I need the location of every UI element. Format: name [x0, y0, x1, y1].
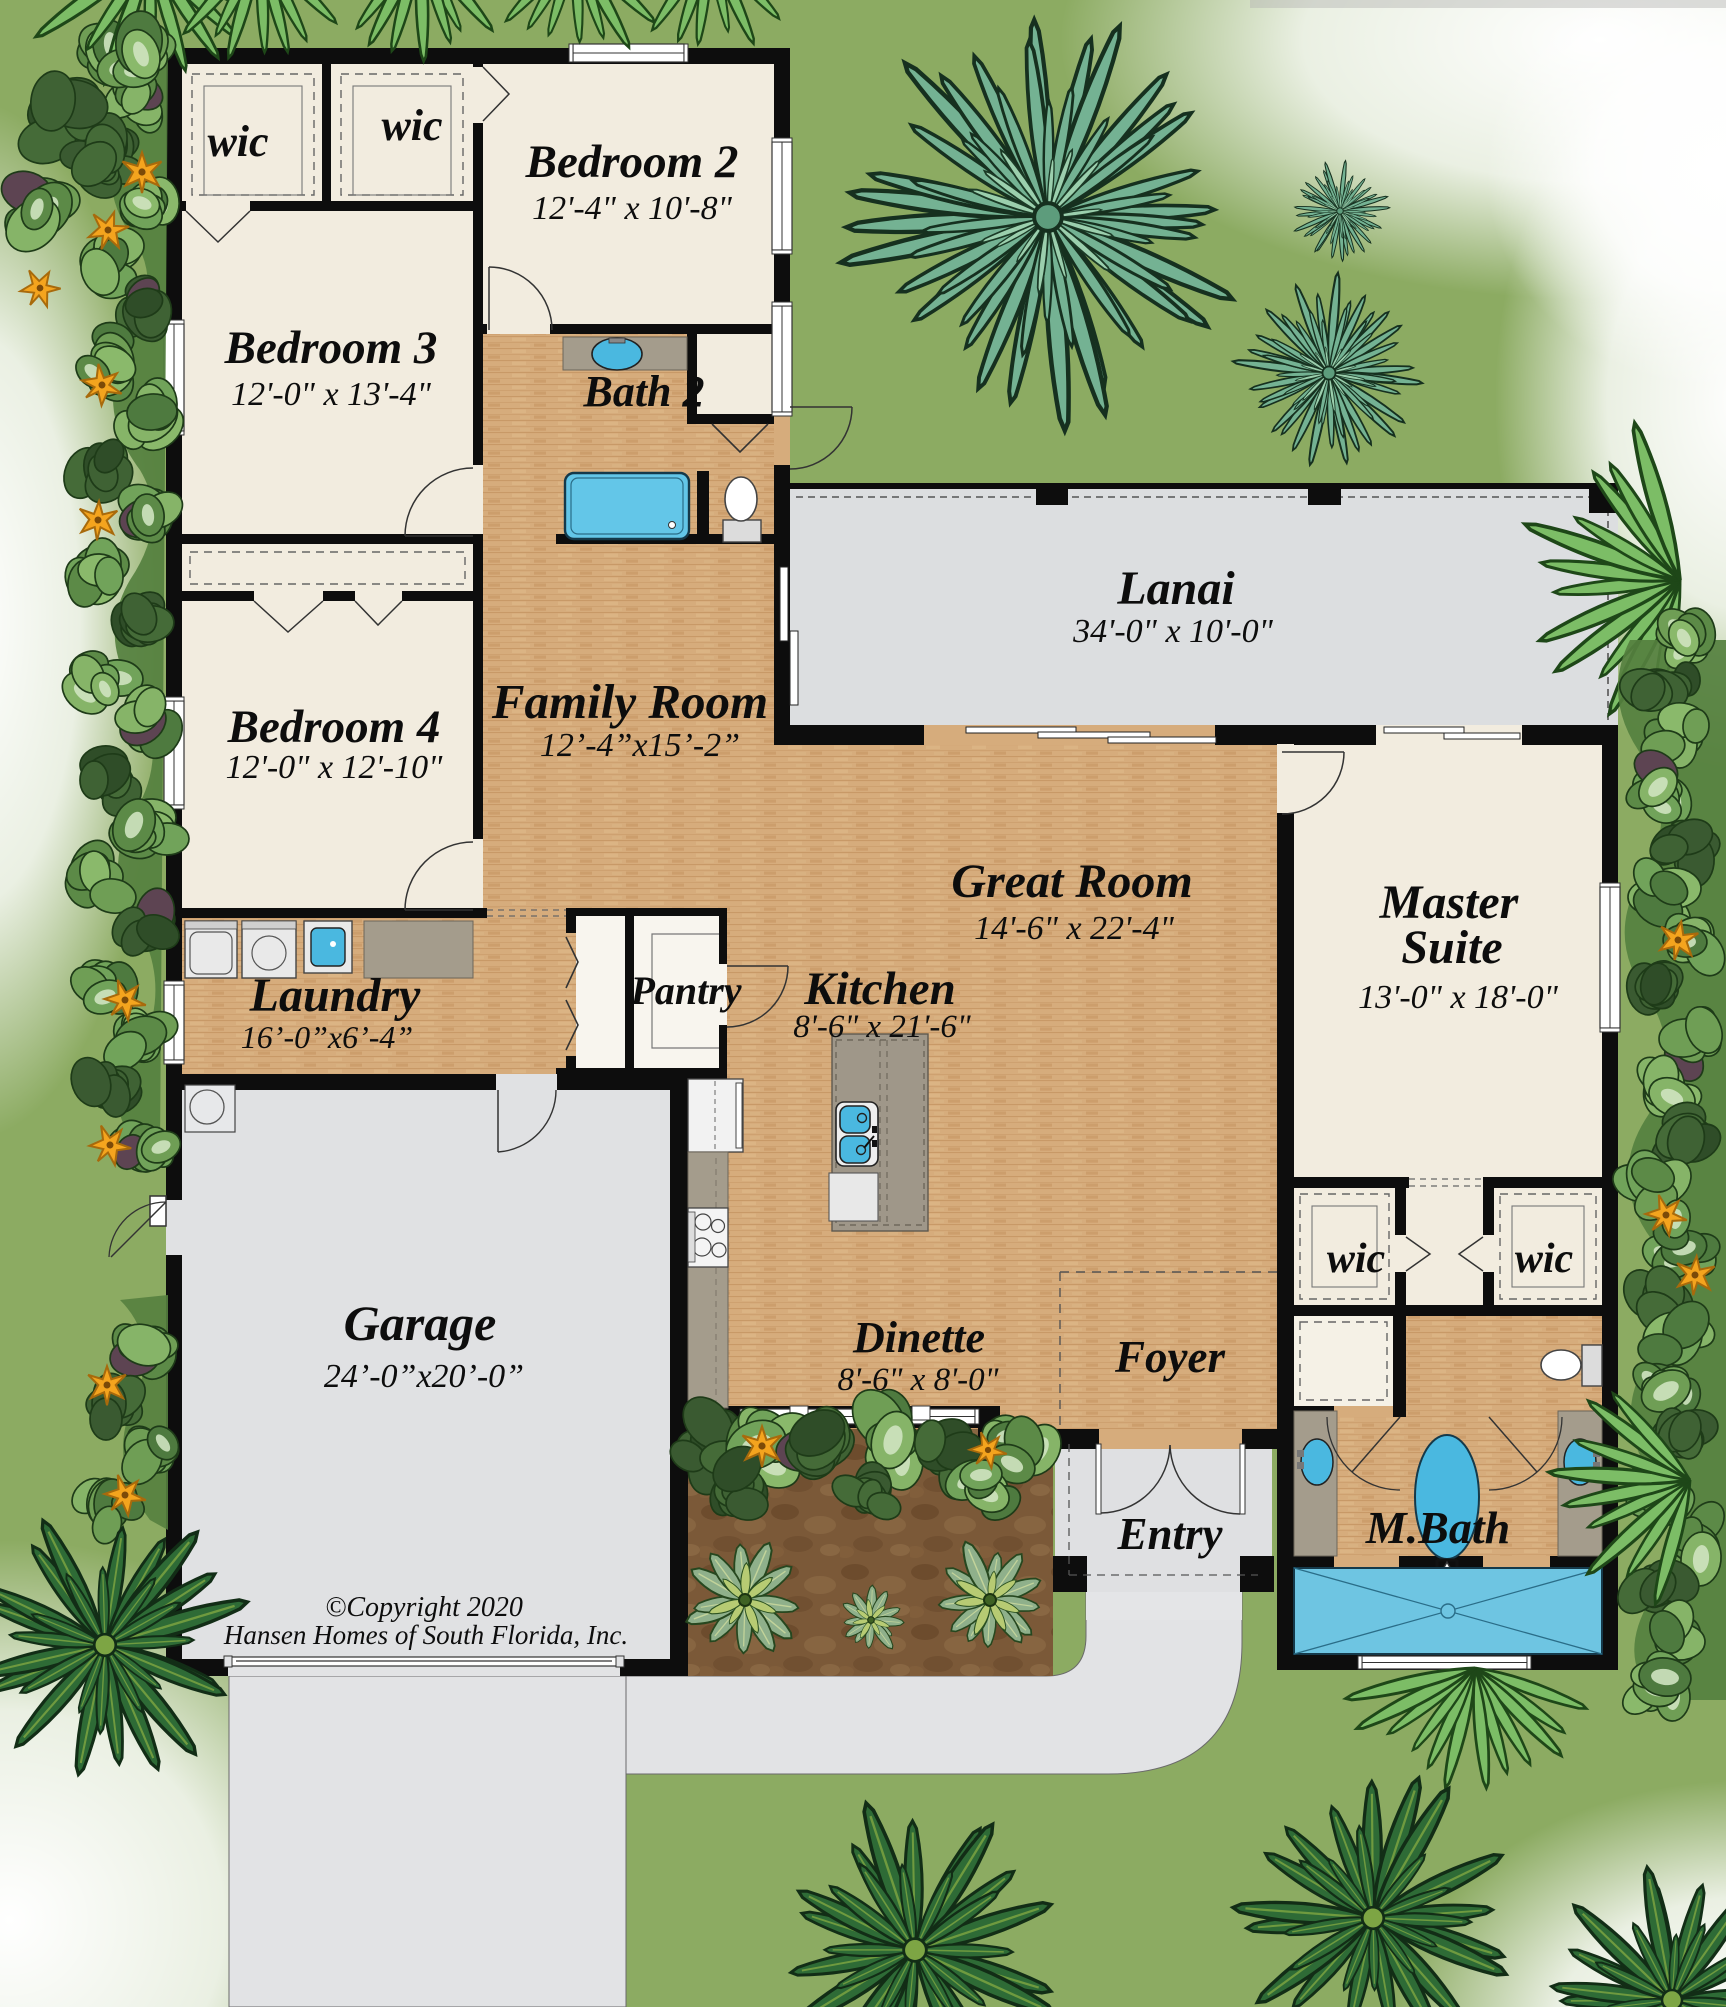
svg-text:Bedroom 3: Bedroom 3 [224, 322, 438, 374]
svg-text:12'-0" x 13'-4": 12'-0" x 13'-4" [231, 376, 432, 413]
svg-text:wic: wic [1515, 1236, 1574, 1282]
svg-text:Entry: Entry [1116, 1509, 1223, 1559]
svg-text:Suite: Suite [1401, 921, 1502, 974]
svg-text:Laundry: Laundry [249, 969, 421, 1022]
svg-text:34'-0" x 10'-0": 34'-0" x 10'-0" [1072, 613, 1274, 650]
svg-text:Kitchen: Kitchen [803, 963, 955, 1015]
svg-text:14'-6" x 22'-4": 14'-6" x 22'-4" [974, 910, 1175, 947]
svg-text:Lanai: Lanai [1116, 562, 1235, 615]
svg-text:Foyer: Foyer [1114, 1332, 1225, 1382]
svg-text:Great Room: Great Room [951, 855, 1192, 908]
svg-text:16’-0”x6’-4”: 16’-0”x6’-4” [241, 1019, 413, 1055]
svg-text:12'-4" x 10'-8": 12'-4" x 10'-8" [532, 190, 733, 227]
svg-text:wic: wic [381, 101, 442, 150]
svg-text:Dinette: Dinette [852, 1313, 985, 1362]
svg-text:12’-4”x15’-2”: 12’-4”x15’-2” [540, 727, 740, 764]
svg-text:Bedroom 2: Bedroom 2 [525, 136, 739, 188]
svg-text:wic: wic [207, 117, 268, 166]
svg-text:24’-0”x20’-0”: 24’-0”x20’-0” [324, 1358, 524, 1395]
svg-text:Pantry: Pantry [629, 968, 741, 1013]
svg-text:©Copyright 2020: ©Copyright 2020 [325, 1592, 523, 1623]
svg-text:8'-6" x 21'-6": 8'-6" x 21'-6" [793, 1009, 971, 1045]
svg-text:wic: wic [1327, 1236, 1386, 1282]
svg-text:12'-0" x 12'-10": 12'-0" x 12'-10" [226, 749, 444, 786]
svg-text:Garage: Garage [344, 1295, 497, 1351]
svg-text:13'-0" x 18'-0": 13'-0" x 18'-0" [1358, 979, 1559, 1016]
svg-text:Family Room: Family Room [491, 674, 768, 729]
svg-text:Bath 2: Bath 2 [582, 367, 704, 416]
svg-text:Bedroom 4: Bedroom 4 [227, 701, 441, 753]
svg-text:Hansen Homes of South Florida,: Hansen Homes of South Florida, Inc. [223, 1620, 628, 1650]
svg-text:M.Bath: M.Bath [1365, 1502, 1510, 1553]
